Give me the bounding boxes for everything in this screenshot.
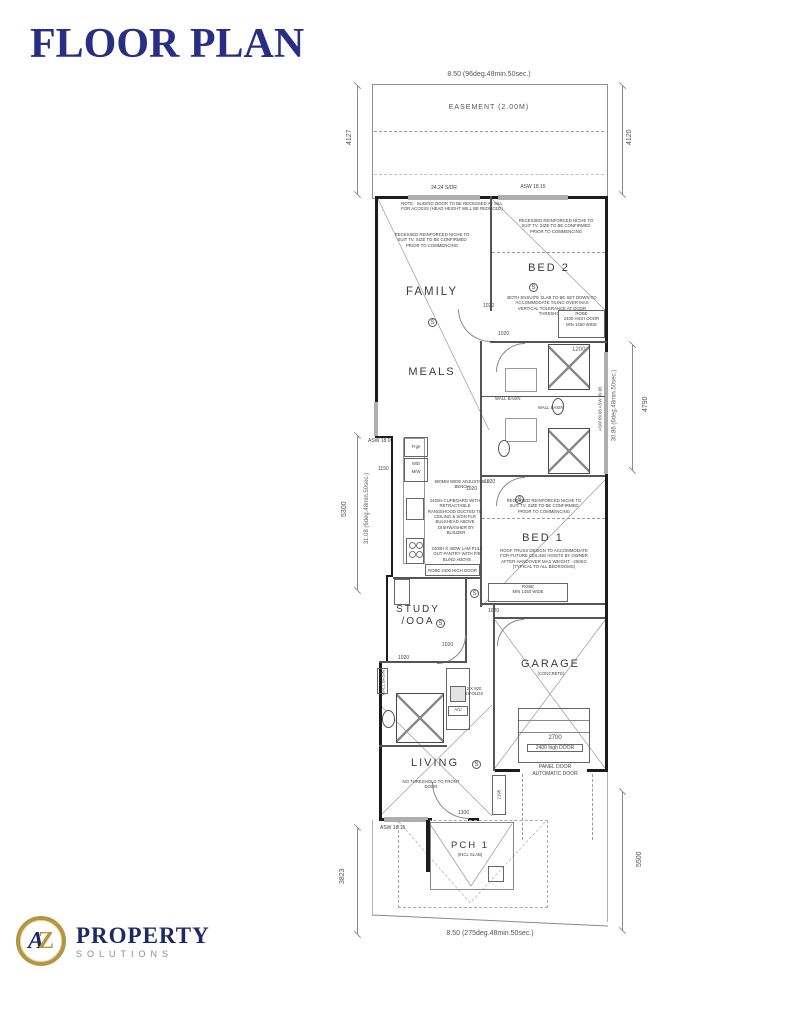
wall-bed1-bottom [480,603,605,605]
room-bed1: BED 1 [513,532,573,544]
garage-door-type-2: AUTOMATIC DOOR [530,771,580,777]
dim-1020-garage: 1020 [488,608,514,614]
boundary-bottom-label: 8.50 (275deg.48min.50sec.) [372,930,608,938]
room-living: LIVING [405,757,465,769]
dim-1020-ens1: 1020 [498,331,524,337]
wall-study-right [465,577,467,663]
wall-laundry-top [379,661,467,663]
room-family: FAMILY [398,286,466,298]
window-top-band [498,195,568,200]
dim-line-left-bottom [357,828,358,934]
dim-left-mid: 5300 [341,494,349,524]
sliding-door-band [408,195,480,200]
toilet-ens2 [498,440,510,457]
floor-plan-page: { "header": { "title": "FLOOR PLAN" }, "… [0,0,810,1012]
wall-garage-bottom-1 [495,769,520,772]
room-garage-sub: (CONCRETE) [522,671,580,676]
dim-line-right-top [622,86,623,194]
sink [406,498,424,520]
note-truss: ROOF TRUSS DESIGN TO ACCOMMODATE FOR FUT… [496,548,592,569]
burner-2 [416,542,423,549]
robe-bed1-l2: MIN 1450 WIDE [489,589,567,594]
wall-laundry-bottom [379,745,447,747]
boundary-left-lower [372,820,373,916]
window-top-label: ASW 18.15 [497,184,569,190]
dim-1150: 1150 [378,466,408,472]
wall-corridor [480,341,482,607]
driveway-line-2 [592,774,593,840]
bifolds-l2: BIFOLDS [452,691,496,696]
site-boundary-top [372,84,608,199]
room-meals: MEALS [403,366,461,378]
wall-basin-1: WALL BASIN [495,396,525,401]
dim-left-mid-len: 31.08 (6deg.48min.50sec.) [364,451,371,566]
note-threshold: NO THRESHOLD TO FRONT DOOR [396,779,466,790]
note-dishwasher: DISHWASHER BY BUILDER [430,525,482,536]
robe-bed2-l3: MIN 1450 WIDE [559,322,604,327]
garage-door-type-1: PANEL DOOR [535,764,575,770]
robe-kitchen: ROBE 2400 HIGH DOOR [425,564,480,576]
burner-3 [409,551,416,558]
wall-right [605,196,608,772]
dim-right-bottom: 5500 [636,844,644,874]
wall-garage-top [495,617,605,619]
wall-kitchen-left [391,436,393,577]
note-bench: 900MM WIDE ADJUSTABLE BENCH [433,479,491,490]
panel-line-1 [519,720,589,721]
slider-top-label: 24.24 S/DR [405,185,483,191]
dim-right-mid: 4790 [642,389,650,419]
note-tv-bed1: RECESSED REINFORCED NICHE TO SUIT TV. SI… [503,498,585,514]
easement-line [374,131,604,132]
wall-ens2-bed1 [480,475,605,477]
logo-letter-z: Z [38,928,54,955]
symbol-bed2: S [529,283,538,292]
logo-name: PROPERTY [76,923,210,949]
note-pantry: 2400H X 300W LAM PULL OUT PANTRY WITH P/… [428,546,486,562]
wall-garage-bottom-2 [587,769,608,772]
window-left-band [374,402,378,436]
dim-left-bottom: 3823 [339,861,347,891]
window-right-band [604,352,608,474]
logo-ring-icon: A Z [16,916,66,966]
room-study: STUDY [394,604,442,615]
wall-family-bed2 [490,196,492,311]
burner-4 [416,551,423,558]
panel-line-2 [519,732,589,733]
toilet-bath [382,710,395,728]
ceiling-line-bed2 [492,252,605,253]
room-study-2: /OOA [394,616,442,627]
symbol-family: S [428,318,437,327]
shower-ens1 [548,344,590,390]
page-title: FLOOR PLAN [30,20,304,68]
air-unit: A/U [448,706,468,716]
bed2-door-arc [458,309,491,342]
vanity-ens2 [505,418,537,442]
wall-bed2-ens [490,341,607,343]
dim-right-top: 4120 [626,117,634,157]
shower-ens2 [548,428,590,474]
dim-2195: 2195 [496,780,501,810]
room-bed2: BED 2 [518,262,580,274]
symbol-study: S [436,619,445,628]
dim-left-top: 4127 [346,117,354,157]
wall-basin-3: WALL BASIN [380,662,385,696]
linen-cupboard [394,579,410,605]
robe-bed2: ROBE 2400 HIGH DOOR MIN 1450 WIDE [558,310,605,338]
robe-bed1: ROBE MIN 1450 WIDE [488,583,568,602]
dim-line-right-bottom [622,792,623,930]
boundary-top-label: 8.50 (96deg.48min.50sec.) [372,71,606,79]
garage-door-height: 2400 high DOOR [527,744,583,752]
dim-line-left-top [357,86,358,194]
easement-label: EASEMENT (2.00M) [372,104,606,112]
logo-text: PROPERTY SOLUTIONS [76,923,210,959]
room-garage: GARAGE [518,658,583,670]
dim-line-left-mid [357,436,358,590]
note-rangehood: 2400H CUPBOARD WITH RETRACTABLE RANGEHOO… [427,498,483,525]
logo: A Z PROPERTY SOLUTIONS [16,916,210,966]
setback-line [374,174,604,175]
ceiling-line-bed1 [482,518,605,519]
garage-door-arc [497,619,524,646]
window-right-label: ASW 09.06 ASW 09.06 [597,354,602,464]
wall-basin-2: WALL BASIN [538,405,568,410]
bifolds-label: 2 X 920 BIFOLDS [452,686,496,697]
shower-bath [396,693,444,743]
dim-1020-bath: 1020 [398,655,424,661]
porch-pier [488,866,504,882]
dim-right-mid-len: 30.86 (6deg.48min.50sec.) [611,346,618,466]
dim-1300: 1300 [458,810,484,816]
fridge: Frge [404,437,428,457]
boundary-right-lower [607,772,608,922]
porch-wall [426,820,430,872]
garage-door-width: 2700 [540,735,570,742]
study-door-arc [437,635,466,664]
symbol-hall: S [470,589,479,598]
vanity-ens1 [505,368,537,392]
robe-bed2-l2: 2400 HIGH DOOR [559,316,604,321]
note-tv-family: RECESSED REINFORCED NICHE TO SUIT TV. SI… [392,232,472,248]
symbol-living: S [472,760,481,769]
burner-1 [409,542,416,549]
wall-study-left [386,575,388,663]
dim-1020-study: 1020 [442,642,468,648]
logo-subtitle: SOLUTIONS [76,949,210,959]
dim-line-right-mid [632,345,633,470]
note-sliding: NOTE : SLIDING DOOR TO BE RECESSED AT SI… [398,201,506,212]
note-tv-bed2: RECESSED REINFORCED NICHE TO SUIT TV. SI… [516,218,596,234]
